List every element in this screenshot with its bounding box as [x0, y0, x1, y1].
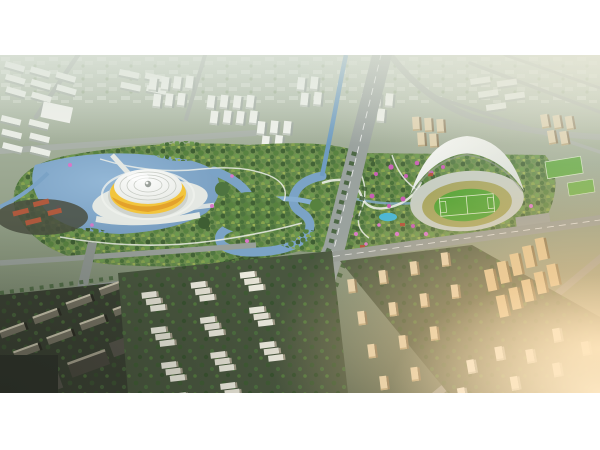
masterplan-rendering — [0, 55, 600, 393]
bottom-left-shadow — [0, 55, 600, 393]
screenshot-page — [0, 0, 600, 450]
masterplan-image — [0, 55, 600, 393]
